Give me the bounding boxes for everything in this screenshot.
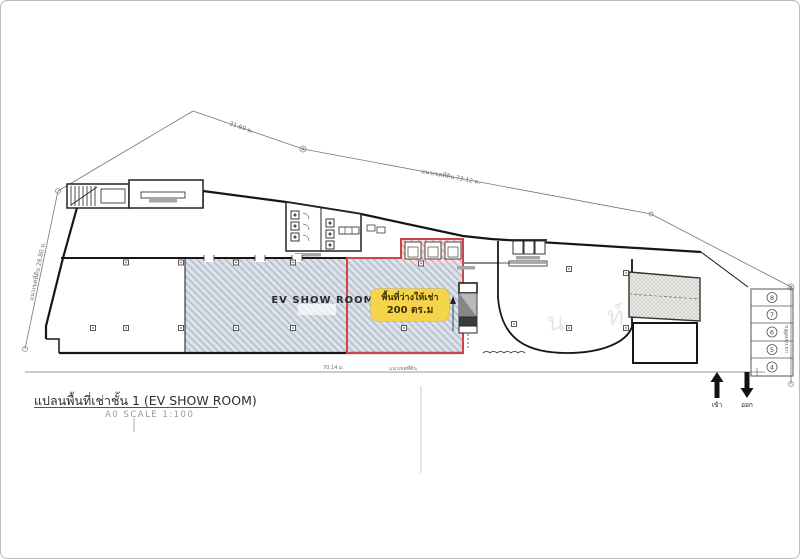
title-underline xyxy=(34,407,218,408)
exit-label: ออก xyxy=(741,401,753,409)
rental-badge-line2: 200 ตร.ม xyxy=(373,304,447,317)
folding-door xyxy=(483,352,525,353)
parking-number: 5 xyxy=(770,346,774,354)
entry-exit-arrows: เข้า ออก xyxy=(711,372,754,409)
watermark-char: ท์ xyxy=(607,302,624,332)
dimension-top-right: แนวเขตที่ดิน 73.12 ม. xyxy=(421,167,482,186)
showroom-label: EV SHOW ROOM xyxy=(271,295,374,306)
scale-label: A0 SCALE 1:100 xyxy=(105,410,194,420)
rental-area-badge: พื้นที่ว่างให้เช่า 200 ตร.ม xyxy=(371,289,449,321)
dimension-top-left: 31.60 ม. xyxy=(228,120,254,135)
dimension-right-label: แนวเขตที่ดิน xyxy=(783,325,790,353)
stair-room xyxy=(67,184,129,208)
micro-label xyxy=(367,225,375,231)
micro-label xyxy=(516,256,540,260)
lift-lobby xyxy=(498,240,547,266)
toilet-block xyxy=(286,202,385,257)
dimension-left: แนวเขตที่ดิน 28.80 ม. xyxy=(27,241,47,302)
ramp xyxy=(629,272,700,321)
watermark: น ท์ xyxy=(547,302,624,338)
floor-plan-sheet: 31.60 ม. แนวเขตที่ดิน 73.12 ม. แนวเขตที่… xyxy=(0,0,800,559)
dimension-bottom-length: 70.14 ม. xyxy=(323,365,344,371)
rental-badge-line1: พื้นที่ว่างให้เช่า xyxy=(373,292,447,304)
back-room xyxy=(633,323,697,363)
parking-number: 8 xyxy=(770,294,774,302)
micro-label xyxy=(149,199,177,203)
enter-label: เข้า xyxy=(712,401,723,409)
watermark-char: น xyxy=(547,308,565,338)
micro-label xyxy=(377,227,385,233)
parking-number: 4 xyxy=(770,364,774,372)
micro-label xyxy=(457,266,475,270)
enter-arrow-icon xyxy=(711,372,724,398)
office-room xyxy=(129,180,203,208)
sheet-title: แปลนพื้นที่เช่าชั้น 1 (EV SHOW ROOM) xyxy=(34,391,257,411)
parking-number: 7 xyxy=(770,311,774,319)
parking-number: 6 xyxy=(770,329,774,337)
floor-plan-drawing: 31.60 ม. แนวเขตที่ดิน 73.12 ม. แนวเขตที่… xyxy=(1,1,799,558)
rental-fixtures xyxy=(405,242,461,259)
dimension-bottom-label: แนวเขตที่ดิน xyxy=(389,365,417,372)
